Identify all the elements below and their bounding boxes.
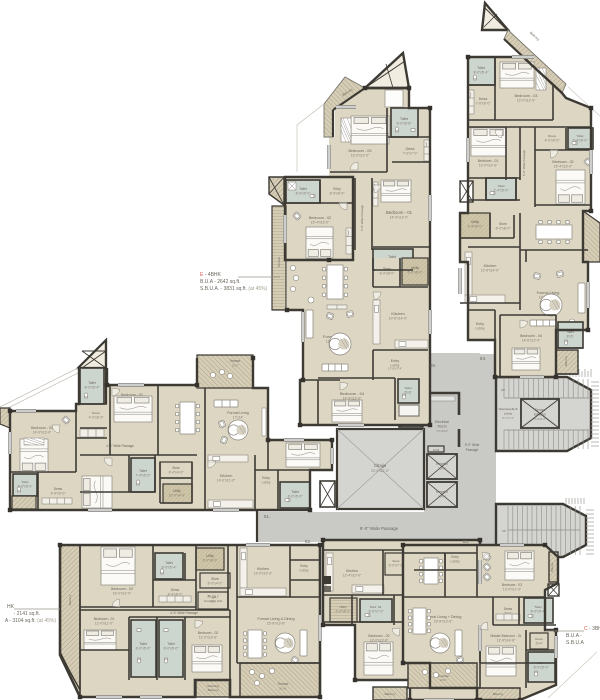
svg-text:Elevator: Elevator	[534, 413, 547, 417]
svg-text:Terrace: Terrace	[277, 257, 281, 268]
svg-text:Staircase&Lift: Staircase&Lift	[498, 407, 517, 411]
svg-text:Master Bedroom - 01: Master Bedroom - 01	[491, 634, 522, 638]
svg-text:01.: 01.	[264, 514, 270, 519]
svg-text:Lobby: Lobby	[476, 327, 485, 331]
svg-text:S.B.U.A. - 3831 sq.ft. (at 45%: S.B.U.A. - 3831 sq.ft. (at 45%)	[200, 286, 268, 292]
svg-text:Toilet: Toilet	[477, 66, 485, 70]
svg-text:23’-0”x21’-0”: 23’-0”x21’-0”	[371, 469, 389, 473]
svg-text:Bedroom - 02: Bedroom - 02	[309, 216, 331, 220]
svg-text:Toilet: Toilet	[497, 184, 504, 188]
svg-text:4’-0”x6’-9”: 4’-0”x6’-9”	[89, 416, 104, 420]
svg-text:17’-8”x7’-4”: 17’-8”x7’-4”	[388, 367, 402, 371]
svg-text:Toilet: Toilet	[299, 187, 307, 191]
svg-text:6’-0” Wide Passage: 6’-0” Wide Passage	[360, 205, 364, 232]
svg-text:4’-6” Wide Passage: 4’-6” Wide Passage	[170, 611, 198, 615]
svg-text:12’-0”x11’-0”: 12’-0”x11’-0”	[95, 622, 113, 626]
svg-text:UP: UP	[501, 388, 505, 392]
svg-text:Toilet: Toilet	[167, 642, 175, 646]
svg-text:17’x14’: 17’x14’	[233, 416, 244, 420]
svg-text:Toilet: Toilet	[404, 386, 411, 390]
svg-text:Kitchen: Kitchen	[346, 569, 358, 573]
svg-text:9’-0” Wide: 9’-0” Wide	[465, 443, 480, 447]
svg-text:8’-0”x5’-4”: 8’-0”x5’-4”	[85, 386, 100, 390]
svg-text:Toilet: Toilet	[165, 561, 173, 565]
svg-text:13’-0”x12’-0”: 13’-0”x12’-0”	[351, 154, 370, 158]
svg-text:Elevator: Elevator	[436, 462, 449, 466]
svg-text:Utility: Utility	[339, 605, 347, 609]
svg-text:Bedroom - 02: Bedroom - 02	[368, 634, 389, 638]
svg-text:6’x4’: 6’x4’	[536, 642, 543, 646]
svg-text:Utility: Utility	[471, 220, 479, 224]
svg-text:Lobby: Lobby	[504, 412, 513, 416]
svg-text:Toilet: Toilet	[139, 469, 147, 473]
svg-text:6’-0”x7’-0”: 6’-0”x7’-0”	[389, 564, 404, 568]
svg-text:8’-0”x5’-0”: 8’-0”x5’-0”	[288, 495, 303, 499]
svg-text:Toilet: Toilet	[139, 642, 147, 646]
svg-text:Lobby: Lobby	[262, 481, 271, 485]
svg-text:7’-4”x5’-0”: 7’-4”x5’-0”	[494, 189, 509, 193]
svg-text:Bedroom - 04: Bedroom - 04	[340, 391, 365, 396]
svg-text:15’-4”x13’-0”: 15’-4”x13’-0”	[311, 221, 330, 225]
svg-text:Chajja: Chajja	[374, 463, 387, 468]
svg-text:Dress: Dress	[504, 607, 513, 611]
svg-text:14’-6”x12’-0”: 14’-6”x12’-0”	[522, 339, 541, 343]
svg-text:Balcony: Balcony	[493, 692, 504, 696]
svg-text:Entry: Entry	[262, 476, 270, 480]
svg-text:B.U.A -: B.U.A -	[566, 633, 582, 639]
svg-text:10’-6”x14’-0”: 10’-6”x14’-0”	[389, 317, 408, 321]
svg-text:Store: Store	[392, 559, 400, 563]
svg-text:6’-0”x8’-0”: 6’-0”x8’-0”	[203, 559, 218, 563]
svg-text:8’-0”x5’-0”: 8’-0”x5’-0”	[164, 647, 179, 651]
svg-text:Bedroom - 03: Bedroom - 03	[111, 587, 133, 591]
svg-text:03.: 03.	[463, 539, 469, 544]
svg-text:7’0x7’0: 7’0x7’0	[438, 467, 447, 471]
svg-text:23’-8”x13’-6”: 23’-8”x13’-6”	[434, 620, 453, 624]
svg-text:8’-6”x5’-0”: 8’-6”x5’-0”	[296, 192, 311, 196]
svg-text:Entry: Entry	[391, 359, 400, 363]
svg-text:Electrical: Electrical	[435, 420, 449, 424]
svg-text:Lobby: Lobby	[300, 569, 309, 573]
svg-text:Bedroom - 03: Bedroom - 03	[348, 149, 371, 153]
svg-text:UP: UP	[502, 529, 506, 533]
svg-text:6’-6”x9’-0”: 6’-6”x9’-0”	[534, 417, 546, 421]
svg-text:Dress: Dress	[171, 588, 180, 592]
svg-text:Store: Store	[172, 466, 180, 470]
svg-text:7’2”x14’3”: 7’2”x14’3”	[436, 429, 448, 433]
svg-text:8’-0”x8’-9”: 8’-0”x8’-9”	[330, 192, 345, 196]
svg-text:Lobby: Lobby	[451, 560, 460, 564]
svg-text:12’-4”x10’-0”: 12’-4”x10’-0”	[343, 574, 362, 578]
svg-text:Dress: Dress	[54, 487, 63, 491]
svg-text:26’x11’: 26’x11’	[279, 687, 287, 691]
svg-text:Balcony: Balcony	[564, 355, 568, 366]
svg-text:Bedroom - 02: Bedroom - 02	[552, 160, 573, 164]
svg-text:6’-7”x7’-4”: 6’-7”x7’-4”	[502, 416, 514, 420]
svg-text:Dress: Dress	[479, 97, 488, 101]
svg-text:6’-0”x7’-0”: 6’-0”x7’-0”	[369, 610, 384, 614]
svg-text:Service: Service	[535, 408, 546, 412]
svg-text:Bedroom - 03: Bedroom - 03	[502, 583, 522, 587]
svg-text:13’-0”x11’-0”: 13’-0”x11’-0”	[503, 588, 521, 592]
svg-text:Entry: Entry	[476, 322, 484, 326]
svg-text:Bedroom - 04: Bedroom - 04	[520, 334, 542, 338]
svg-text:7’-4”x5’-0”: 7’-4”x5’-0”	[136, 474, 151, 478]
svg-text:04.: 04.	[480, 356, 486, 361]
svg-text:13’-0”x12’-0”: 13’-0”x12’-0”	[479, 164, 498, 168]
svg-text:6’-4”x8’-0”: 6’-4”x8’-0”	[336, 610, 351, 614]
svg-text:A - 3104 sq.ft. (at 45%): A - 3104 sq.ft. (at 45%)	[5, 618, 56, 624]
svg-text:Entry: Entry	[333, 187, 341, 191]
svg-text:Veranda: Veranda	[437, 674, 449, 678]
svg-text:Bedroom - 01: Bedroom - 01	[94, 617, 115, 621]
svg-text:Balcony: Balcony	[385, 692, 396, 696]
svg-text:HK: HK	[7, 604, 15, 610]
svg-text:Elevator: Elevator	[436, 490, 449, 494]
svg-text:Dress: Dress	[406, 147, 415, 151]
svg-text:22’x8’: 22’x8’	[440, 679, 447, 682]
svg-text:Dress: Dress	[535, 637, 543, 641]
svg-text:6’-0”x8’-0”: 6’-0”x8’-0”	[496, 227, 511, 231]
svg-text:12’-9”x14’-8”: 12’-9”x14’-8”	[497, 639, 516, 643]
svg-text:05.: 05.	[430, 363, 436, 368]
svg-text:Balcony: Balcony	[550, 562, 554, 572]
svg-text:Passage: Passage	[466, 448, 479, 452]
svg-text:Kitchen: Kitchen	[391, 311, 404, 316]
svg-text:7’-0”x7’-0”: 7’-0”x7’-0”	[403, 152, 418, 156]
svg-text:9’-0” Wide Passage: 9’-0” Wide Passage	[360, 526, 399, 531]
svg-text:Kitchen: Kitchen	[220, 474, 233, 478]
svg-text:Formal Living: Formal Living	[227, 411, 249, 415]
svg-text:Entry: Entry	[451, 555, 459, 559]
svg-text:C - 3BH: C - 3BH	[584, 626, 600, 632]
svg-text:Kitchen: Kitchen	[484, 264, 497, 268]
svg-text:6’-0”x8’-0”: 6’-0”x8’-0”	[380, 272, 395, 276]
svg-text:15’-4”x13’-0”: 15’-4”x13’-0”	[554, 165, 573, 169]
svg-text:Balcony: Balcony	[68, 594, 72, 605]
svg-text:6’-0” Wide Passage: 6’-0” Wide Passage	[522, 150, 526, 177]
svg-text:13’-0”x12’-0”: 13’-0”x12’-0”	[517, 99, 536, 103]
svg-text:Utility: Utility	[173, 489, 181, 493]
svg-text:7’0x7’0: 7’0x7’0	[438, 495, 447, 499]
svg-text:02.: 02.	[305, 539, 311, 544]
svg-text:14’-0”x13’-0”: 14’-0”x13’-0”	[390, 216, 409, 220]
svg-text:Bedroom - 02: Bedroom - 02	[198, 631, 219, 635]
svg-text:Bedroom - 01: Bedroom - 01	[386, 210, 413, 215]
svg-text:8’-0”x5’-0”: 8’-0”x5’-0”	[534, 666, 549, 670]
svg-text:4’-0”x6’-0”: 4’-0”x6’-0”	[545, 139, 560, 143]
svg-text:14’-0”x11’-0”: 14’-0”x11’-0”	[217, 479, 235, 483]
svg-text:Bedroom - 03: Bedroom - 03	[514, 94, 537, 98]
svg-text:9’-0”x9’-0”: 9’-0”x9’-0”	[51, 492, 66, 496]
svg-text:Utility: Utility	[206, 554, 214, 558]
svg-text:Bedroom - 03: Bedroom - 03	[31, 426, 53, 430]
svg-text:Bedroom - 01: Bedroom - 01	[478, 159, 499, 163]
svg-text:Dress: Dress	[548, 134, 557, 138]
svg-text:Store: Store	[499, 222, 507, 226]
svg-text:8’x5’: 8’x5’	[567, 335, 574, 339]
svg-text:Toilet: Toilet	[400, 117, 408, 121]
svg-text:Kitchen: Kitchen	[257, 567, 269, 571]
svg-text:8’-0”x5’-4”: 8’-0”x5’-4”	[474, 71, 489, 75]
svg-text:S.B.U.A: S.B.U.A	[566, 640, 584, 646]
svg-text:8’-0”x5’-4”: 8’-0”x5’-4”	[531, 610, 546, 614]
svg-text:10’-0”x4’-0”: 10’-0”x4’-0”	[169, 494, 186, 498]
svg-text:Terrace: Terrace	[278, 682, 289, 686]
svg-text:Toilet: Toilet	[291, 490, 299, 494]
svg-text:Formal Living & Dining: Formal Living & Dining	[257, 617, 294, 621]
svg-text:6’-0”x8’-0”: 6’-0”x8’-0”	[408, 271, 423, 275]
svg-text:12’-0”x10’-0”: 12’-0”x10’-0”	[254, 572, 273, 576]
svg-text:12’-0”x13’-6”: 12’-0”x13’-6”	[199, 636, 218, 640]
svg-text:7’-0”x6’-0”: 7’-0”x6’-0”	[476, 102, 491, 106]
svg-text:Toilet: Toilet	[534, 605, 541, 609]
svg-text:Entry: Entry	[300, 564, 308, 568]
svg-text:Toilet: Toilet	[21, 480, 28, 484]
svg-text:8’-0”x5’-0”: 8’-0”x5’-0”	[136, 647, 151, 651]
svg-text:E - 4BHK: E - 4BHK	[200, 272, 222, 278]
svg-text:Crockery Unit: Crockery Unit	[204, 599, 222, 603]
svg-text:Pwd. Tol.: Pwd. Tol.	[370, 605, 382, 609]
svg-text:8’-4”x4’-0”: 8’-4”x4’-0”	[169, 471, 184, 475]
svg-text:Terrace: Terrace	[230, 359, 241, 363]
svg-text:Balcony: Balcony	[208, 688, 219, 692]
svg-text:10’-6”x14’-0”: 10’-6”x14’-0”	[481, 269, 500, 273]
svg-text:Room: Room	[437, 425, 446, 429]
svg-text:8’-0”x5’-4”: 8’-0”x5’-4”	[162, 566, 177, 570]
svg-text:B.U.A - 2642 sq.ft.: B.U.A - 2642 sq.ft.	[200, 279, 241, 285]
svg-text:P.A.B: P.A.B	[433, 448, 440, 452]
svg-text:Toilet: Toilet	[88, 381, 96, 385]
svg-text:16’-0”x12’-0”: 16’-0”x12’-0”	[113, 592, 132, 596]
svg-text:8’-0”x6’-8”: 8’-0”x6’-8”	[397, 122, 412, 126]
svg-text:Toilet: Toilet	[576, 134, 583, 138]
svg-text:14’-0”x13’-0”: 14’-0”x13’-0”	[33, 431, 52, 435]
svg-text:6’-4”x8’-0”: 6’-4”x8’-0”	[468, 225, 483, 229]
svg-text:Store: Store	[211, 577, 219, 581]
svg-text:- 2141 sq.ft.: - 2141 sq.ft.	[14, 611, 40, 617]
svg-text:23’-8”x13’-6”: 23’-8”x13’-6”	[267, 622, 286, 626]
svg-text:19’x7’: 19’x7’	[232, 364, 239, 368]
svg-text:Dress: Dress	[92, 411, 100, 415]
svg-text:8’-0”x4’-0”: 8’-0”x4’-0”	[208, 582, 223, 586]
